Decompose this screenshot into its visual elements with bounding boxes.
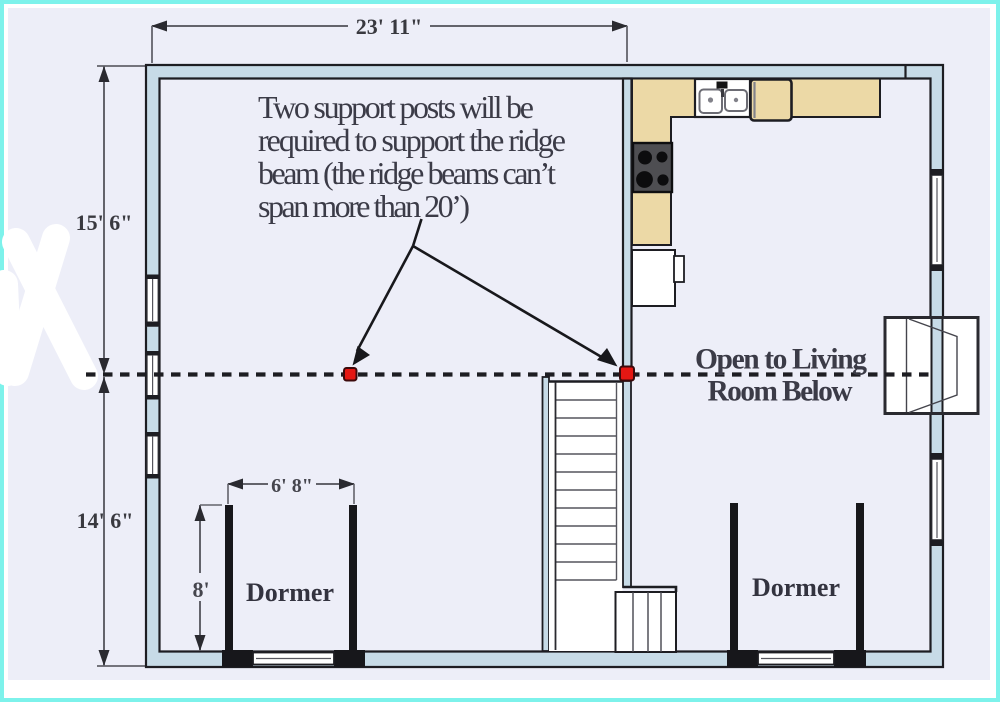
svg-text:beam (the ridge beams can’t: beam (the ridge beams can’t — [258, 155, 556, 191]
svg-text:6' 8": 6' 8" — [271, 475, 313, 497]
svg-text:required to support the ridge: required to support the ridge — [258, 122, 566, 158]
svg-text:Open to Living: Open to Living — [695, 344, 867, 376]
svg-text:Dormer: Dormer — [246, 578, 334, 607]
svg-text:span more than 20’): span more than 20’) — [258, 188, 470, 224]
svg-text:Room Below: Room Below — [708, 376, 854, 408]
svg-text:15' 6": 15' 6" — [76, 210, 133, 235]
svg-text:23' 11": 23' 11" — [356, 14, 423, 39]
svg-text:8': 8' — [192, 577, 209, 602]
svg-text:Dormer: Dormer — [752, 573, 840, 602]
svg-text:14' 6": 14' 6" — [77, 508, 134, 533]
svg-text:Two support posts will be: Two support posts will be — [258, 89, 534, 125]
